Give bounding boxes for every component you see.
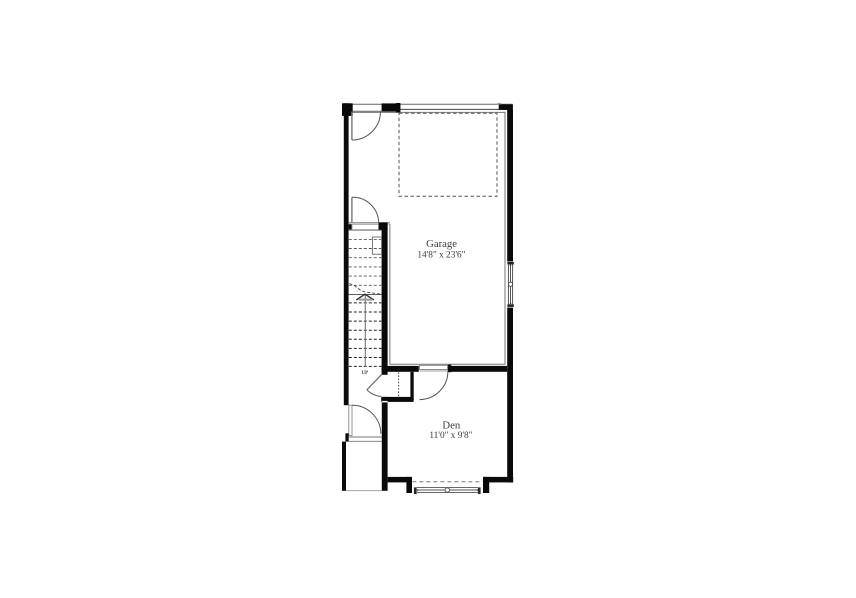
svg-text:14'8" x 23'6": 14'8" x 23'6"	[417, 250, 465, 260]
svg-text:Den: Den	[442, 419, 460, 431]
svg-text:UP: UP	[362, 371, 369, 376]
svg-text:11'0" x 9'8": 11'0" x 9'8"	[429, 431, 472, 441]
svg-text:Garage: Garage	[426, 238, 457, 250]
